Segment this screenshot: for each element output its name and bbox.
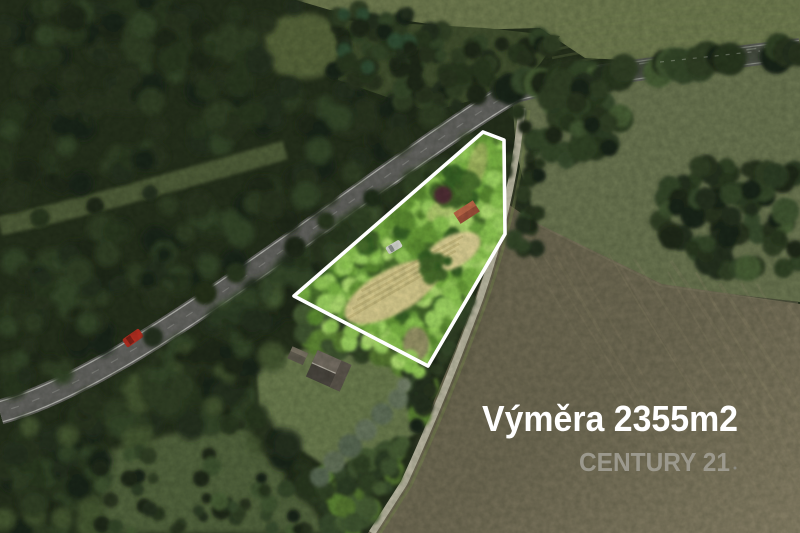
svg-text:CENTURY 21: CENTURY 21 — [579, 447, 730, 477]
svg-text:Výměra 2355m2: Výměra 2355m2 — [482, 398, 738, 439]
